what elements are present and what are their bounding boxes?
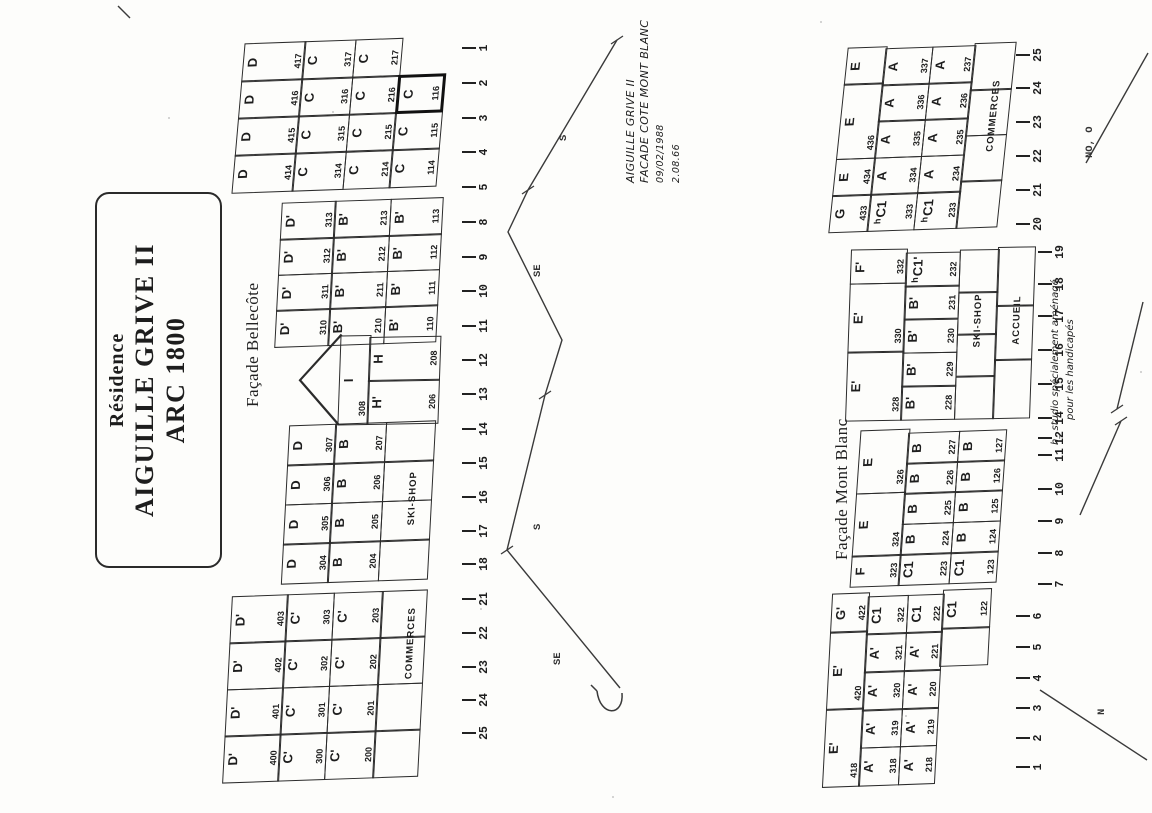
- unit-cell-228: B'228: [900, 385, 956, 421]
- unit-cell-212: B'212: [331, 235, 390, 275]
- empty-cell: [377, 636, 426, 686]
- axis-tick: [462, 325, 476, 327]
- axis-number: 10: [1054, 482, 1067, 496]
- unit-type-label: A: [877, 121, 895, 158]
- unit-cell-328: E'328: [845, 351, 904, 422]
- unit-number: 122: [978, 590, 990, 628]
- axis-number: 2: [1032, 735, 1045, 742]
- axis-tick: [462, 563, 476, 565]
- unit-cell-302: C'302: [282, 639, 333, 689]
- direction-label: S: [532, 524, 544, 530]
- unit-type-label: A': [865, 672, 881, 710]
- unit-number: 114: [424, 149, 437, 186]
- axis-number: 21: [1032, 183, 1045, 197]
- floor-row: B'110B'111B'112B'113: [383, 197, 444, 344]
- unit-type-label: B: [960, 431, 976, 462]
- axis-number: 14: [478, 422, 491, 436]
- unit-cell-205: B205: [329, 501, 383, 544]
- stamp-project: AIGUILLE GRIVE II: [624, 20, 638, 183]
- site-line: [507, 40, 620, 688]
- axis-number: 12: [478, 353, 491, 367]
- unit-type-label: B: [905, 494, 921, 525]
- axis-number: 11: [1054, 448, 1067, 462]
- axis-tick: [1038, 488, 1052, 490]
- unit-cell-217: C217: [352, 38, 403, 79]
- unit-type-label: C: [301, 79, 318, 116]
- unit-cell-116: C116: [395, 73, 446, 114]
- unit-number: 125: [988, 491, 1000, 521]
- empty-cell: [955, 180, 1002, 229]
- unit-cell-315: C315: [295, 114, 350, 155]
- unit-type-label: B: [903, 524, 919, 555]
- axis-number: 17: [478, 524, 491, 538]
- unit-type-label: C1: [909, 595, 925, 633]
- site-line: [118, 6, 130, 18]
- unit-cell-210: B'210: [328, 307, 387, 347]
- unit-cell-125: B125: [952, 490, 1002, 524]
- floor-row: C1123B124B125B126B127: [948, 426, 1007, 585]
- axis-number: 1: [1032, 764, 1045, 771]
- unit-type-label: E: [859, 431, 877, 494]
- unit-type-label: A': [901, 746, 917, 784]
- axis-number: 11: [478, 319, 491, 333]
- unit-number: 111: [426, 270, 438, 306]
- axis-number: 14: [1054, 411, 1067, 425]
- axis-number: 5: [478, 184, 491, 191]
- unit-type-label: B': [332, 273, 348, 309]
- unit-type-label: B: [907, 463, 923, 494]
- axis-tick: [1016, 615, 1030, 617]
- unit-type-label: F: [853, 556, 869, 587]
- axis-number: 5: [1032, 644, 1045, 651]
- unit-cell-319: A'319: [860, 708, 903, 749]
- unit-type-label: C1: [901, 554, 917, 585]
- axis-tick: [1016, 737, 1030, 739]
- floor-row: E'328E'330F'332: [845, 249, 908, 422]
- unit-cell-234: A234: [917, 154, 965, 194]
- axis-tick: [1016, 189, 1030, 191]
- unit-type-label: C1: [869, 597, 885, 635]
- unit-type-label: D': [279, 275, 295, 311]
- direction-label: SE: [552, 652, 564, 665]
- axis-tick: [462, 47, 476, 49]
- unit-cell-227: B227: [906, 431, 960, 465]
- unit-cell-337: A337: [882, 46, 934, 86]
- empty-cell: [374, 682, 423, 732]
- unit-cell-112: B'112: [387, 233, 442, 272]
- unit-cell-400: D'400: [222, 734, 282, 784]
- unit-cell-124: B124: [950, 520, 1000, 554]
- unit-type-label: A': [905, 671, 921, 709]
- unit-cell-326: E326: [856, 429, 910, 495]
- axis-number: 23: [478, 660, 491, 674]
- empty-cell: [954, 375, 996, 419]
- axis-number: 21: [478, 592, 491, 606]
- resort-name: ARC 1800: [160, 194, 191, 566]
- unit-type-label: B: [336, 424, 352, 464]
- axis-number: 20: [1032, 217, 1045, 231]
- ski-shop-label: SKI-SHOP: [972, 293, 985, 347]
- floor-row: [372, 589, 428, 778]
- unit-cell-312: D'312: [278, 237, 335, 276]
- unit-type-label: D': [281, 239, 297, 275]
- empty-cell: [377, 539, 429, 582]
- axis-number: 9: [1054, 518, 1067, 525]
- unit-type-label: B: [332, 503, 348, 543]
- unit-type-label: C': [327, 732, 343, 779]
- scanned-facade-plan: Résidence AIGUILLE GRIVE II ARC 1800 AIG…: [0, 0, 1152, 813]
- unit-type-label: C': [285, 641, 301, 688]
- unit-type-label: D': [283, 203, 299, 239]
- unit-number: 110: [424, 306, 436, 342]
- unit-cell-233: hC1233: [913, 191, 961, 231]
- axis-tick: [1016, 766, 1030, 768]
- unit-cell-225: B225: [902, 491, 956, 525]
- unit-cell-313: D'313: [280, 201, 337, 240]
- unit-cell-222: C1222: [905, 593, 944, 634]
- axis-number: 7: [1054, 581, 1067, 588]
- axis-tick: [462, 666, 476, 668]
- unit-cell-320: A'320: [862, 670, 905, 711]
- unit-type-label: D: [284, 544, 300, 584]
- unit-cell-E: E: [844, 46, 888, 86]
- axis-tick: [1038, 437, 1052, 439]
- unit-number: 112: [428, 234, 440, 270]
- unit-type-label: A: [920, 156, 938, 193]
- floor-row: H'206H208: [367, 332, 442, 425]
- stamp-sheet: FACADE COTE MONT BLANC: [638, 20, 652, 183]
- empty-cell: [992, 359, 1032, 419]
- unit-type-label: hC1: [870, 194, 891, 231]
- unit-cell-415: D415: [235, 116, 300, 157]
- empty-cell: [372, 729, 421, 779]
- unit-cell-330: E'330: [847, 282, 906, 353]
- axis-number: 3: [478, 115, 491, 122]
- unit-type-label: A': [903, 709, 919, 747]
- unit-type-label: D: [238, 118, 255, 155]
- unit-cell-216: C216: [349, 75, 400, 116]
- axis-number: 24: [1032, 81, 1045, 95]
- unit-type-label: hC1': [908, 253, 926, 286]
- unit-type-label: E: [839, 85, 861, 160]
- axis-tick: [462, 632, 476, 634]
- axis-tick: [1016, 155, 1030, 157]
- unit-type-label: C: [355, 40, 372, 77]
- axis-tick: [1016, 223, 1030, 225]
- unit-type-label: C': [280, 734, 296, 781]
- unit-cell-434: E434: [832, 157, 876, 197]
- residence-title: Résidence: [106, 194, 129, 566]
- unit-cell-336: A336: [878, 83, 930, 123]
- site-line-tick: [1111, 405, 1123, 413]
- unit-cell-303: C'303: [285, 593, 336, 643]
- unit-cell-110: B'110: [383, 305, 438, 344]
- site-line-tick: [539, 391, 551, 399]
- building-grid-block-328: E'328E'330F'332B'228B'229B'230B'231hC1'2…: [845, 247, 1036, 422]
- direction-label: SE: [532, 264, 544, 277]
- unit-cell-206: B206: [331, 461, 385, 504]
- axis-number: 2: [478, 80, 491, 87]
- axis-tick: [462, 462, 476, 464]
- compass-hook-icon: [591, 685, 622, 711]
- axis-tick: [462, 393, 476, 395]
- unit-number: 123: [984, 552, 996, 582]
- axis-tick: [462, 428, 476, 430]
- axis-tick: [1038, 315, 1052, 317]
- axis-tick: [462, 186, 476, 188]
- empty-cell: [960, 134, 1007, 183]
- unit-type-label: D': [225, 736, 241, 783]
- unit-cell-236: A236: [924, 81, 972, 121]
- unit-cell-416: D416: [238, 78, 303, 119]
- unit-type-label: C: [305, 42, 322, 79]
- paper-speck: [480, 608, 482, 610]
- axis-number: 16: [1054, 343, 1067, 357]
- axis-number: 24: [478, 693, 491, 707]
- unit-cell-316: C316: [298, 77, 353, 118]
- unit-cell-335: A335: [874, 119, 926, 159]
- unit-type-label: C: [348, 114, 365, 151]
- accueil-label: ACCUEIL: [1011, 295, 1024, 344]
- unit-cell-324: E324: [852, 491, 906, 557]
- building-grid-block-323: F323E324E326C1223B224B225B226B227C1123B1…: [850, 426, 1008, 588]
- unit-number: 113: [430, 198, 442, 234]
- unit-type-label: D: [241, 81, 258, 118]
- unit-type-label: D': [232, 597, 248, 644]
- unit-type-label: C: [391, 150, 408, 187]
- axis-tick: [1038, 283, 1052, 285]
- unit-cell-322: C1322: [866, 595, 909, 636]
- unit-type-label: D: [235, 155, 252, 192]
- axis-tick: [462, 732, 476, 734]
- unit-cell-433: G433: [828, 194, 872, 234]
- empty-cell: [379, 589, 428, 639]
- axis-tick: [462, 256, 476, 258]
- unit-type-label: C: [352, 77, 369, 114]
- unit-cell-126: B126: [955, 459, 1005, 493]
- stamp-date: 09/02/1988: [654, 20, 668, 183]
- building-grid-block-400: D'400D'401D'402D'403C'300C'301C'302C'303…: [222, 589, 428, 783]
- site-line: [1040, 690, 1147, 760]
- empty-cell: [958, 249, 1000, 293]
- unit-cell-215: C215: [345, 112, 396, 153]
- stamp-scale: 2.08.66: [670, 20, 684, 183]
- floor-row: D'310D'311D'312D'313: [274, 201, 337, 348]
- site-line-tick: [1115, 417, 1127, 425]
- site-line-tick: [501, 546, 513, 554]
- unit-type-label: E': [829, 632, 847, 709]
- axis-number: 3: [1032, 705, 1045, 712]
- unit-type-label: B: [958, 461, 974, 492]
- facade-label-bellecote: Façade Bellecôte: [243, 282, 263, 407]
- unit-cell-235: A235: [921, 118, 969, 158]
- axis-tick: [1016, 54, 1030, 56]
- paper-speck: [1140, 371, 1142, 373]
- unit-cell-418: E'418: [822, 708, 864, 788]
- unit-cell-403: D'403: [229, 594, 289, 644]
- unit-type-label: B': [903, 386, 918, 419]
- handicap-flag: h: [919, 217, 930, 223]
- unit-type-label: E': [825, 709, 843, 786]
- unit-cell-334: A334: [870, 156, 922, 196]
- unit-cell-321: A'321: [864, 632, 907, 673]
- unit-cell-420: E'420: [826, 630, 868, 710]
- site-line: [1086, 53, 1148, 163]
- unit-type-label: B': [906, 320, 921, 353]
- axis-number: 23: [1032, 115, 1045, 129]
- axis-tick: [1038, 520, 1052, 522]
- floor-row: B'228B'229B'230B'231hC1'232: [900, 248, 961, 421]
- unit-number: 127: [993, 430, 1005, 460]
- axis-tick: [462, 290, 476, 292]
- axis-tick: [1016, 707, 1030, 709]
- unit-cell-200: C'200: [324, 730, 377, 780]
- axis-number: 19: [1054, 245, 1067, 259]
- axis-tick: [1038, 583, 1052, 585]
- unit-cell-301: C'301: [280, 685, 331, 735]
- axis-number: 13: [478, 387, 491, 401]
- empty-cell: [384, 420, 436, 463]
- unit-type-label: C: [298, 116, 315, 153]
- site-line-tick: [611, 36, 623, 44]
- paper-speck: [168, 117, 170, 119]
- axis-number: 25: [478, 726, 491, 740]
- unit-cell-401: D'401: [225, 687, 285, 737]
- unit-type-label: C': [288, 595, 304, 642]
- unit-cell-306: D306: [285, 463, 335, 506]
- axis-tick: [462, 221, 476, 223]
- floor-row: C1122: [933, 588, 992, 784]
- unit-type-label: D': [228, 690, 244, 737]
- unit-type-label: D: [288, 465, 304, 505]
- unit-cell-311: D'311: [276, 273, 333, 312]
- unit-cell-122: C1122: [941, 588, 992, 629]
- unit-cell-333: hC1333: [867, 192, 919, 232]
- site-line: [1117, 302, 1143, 409]
- axis-tick: [1038, 454, 1052, 456]
- unit-cell-317: C317: [301, 39, 356, 80]
- unit-cell-305: D305: [283, 503, 333, 546]
- unit-cell-226: B226: [904, 461, 958, 495]
- unit-cell-422: G'422: [830, 593, 870, 634]
- unit-type-label: B': [388, 271, 404, 307]
- spacer: [933, 664, 988, 784]
- unit-type-label: B': [392, 199, 408, 235]
- empty-cell: [939, 626, 990, 667]
- unit-type-label: B: [953, 522, 969, 553]
- axis-number: 1: [478, 45, 491, 52]
- unit-cell-230: B'230: [903, 318, 959, 354]
- axis-tick: [462, 699, 476, 701]
- unit-type-label: A: [927, 83, 945, 120]
- unit-type-label: hC1: [916, 192, 937, 229]
- unit-type-label: E: [835, 159, 853, 196]
- axis-tick: [462, 117, 476, 119]
- axis-number: 18: [1054, 277, 1067, 291]
- unit-type-label: D: [286, 505, 302, 545]
- unit-cell-402: D'402: [227, 641, 287, 691]
- axis-tick: [1016, 677, 1030, 679]
- unit-type-label: B: [330, 542, 346, 582]
- axis-number: 8: [478, 219, 491, 226]
- unit-type-label: C: [345, 151, 362, 188]
- unit-cell-318: A'318: [858, 746, 901, 787]
- unit-cell-206: H'206: [367, 379, 441, 425]
- unit-cell-417: D417: [241, 41, 306, 82]
- unit-cell-220: A'220: [902, 669, 941, 710]
- unit-cell-201: C'201: [326, 684, 379, 734]
- unit-type-label: E: [847, 48, 865, 85]
- axis-number: 8: [1054, 550, 1067, 557]
- unit-type-label: C1: [951, 553, 967, 584]
- unit-cell-332: F'332: [850, 249, 908, 285]
- drawing-stamp: AIGUILLE GRIVE II FACADE COTE MONT BLANC…: [624, 20, 684, 183]
- facade-label-montblanc: Façade Mont Blanc: [832, 418, 852, 560]
- unit-type-label: F': [853, 251, 868, 284]
- unit-type-label: C': [329, 686, 345, 733]
- axis-number: 4: [478, 149, 491, 156]
- unit-type-label: C: [295, 153, 312, 190]
- axis-number: 15: [478, 456, 491, 470]
- unit-cell-114: C114: [388, 148, 439, 189]
- unit-cell-237: A237: [928, 45, 976, 85]
- direction-label: S: [558, 135, 570, 141]
- unit-type-label: C: [395, 113, 412, 150]
- unit-cell-204: B204: [327, 540, 381, 583]
- unit-cell-123: C1123: [948, 551, 998, 585]
- unit-cell-219: A'219: [900, 707, 939, 748]
- unit-type-label: A: [881, 85, 899, 122]
- unit-cell-207: B207: [333, 422, 387, 465]
- axis-number: 17: [1054, 309, 1067, 323]
- floor-row: B'210B'211B'212B'213: [328, 199, 393, 346]
- unit-type-label: A: [885, 48, 903, 85]
- axis-tick: [1016, 646, 1030, 648]
- unit-type-label: A: [874, 158, 892, 195]
- axis-number: 9: [478, 254, 491, 261]
- unit-cell-323: F323: [850, 554, 902, 588]
- unit-cell-314: C314: [292, 151, 347, 192]
- unit-type-label: B': [334, 237, 350, 273]
- paper-speck: [612, 796, 614, 798]
- axis-number: 25: [1032, 48, 1045, 62]
- axis-tick: [1038, 349, 1052, 351]
- unit-type-label: B: [955, 492, 971, 523]
- unit-cell-304: D304: [281, 542, 331, 585]
- unit-type-label: G': [833, 594, 849, 632]
- unit-type-label: A': [907, 633, 923, 671]
- unit-cell-214: C214: [342, 149, 393, 190]
- unit-cell-113: B'113: [388, 197, 443, 236]
- unit-type-label: C': [334, 593, 350, 640]
- axis-tick: [1038, 417, 1052, 419]
- building-grid-block-310: D'310D'311D'312D'313B'210B'211B'212B'213…: [274, 197, 443, 348]
- unit-cell-221: A'221: [903, 631, 942, 672]
- unit-number: 126: [991, 460, 1003, 490]
- unit-cell-224: B224: [900, 522, 954, 556]
- unit-cell-300: C'300: [277, 732, 328, 782]
- unit-type-label: C: [400, 77, 417, 110]
- unit-type-label: B: [334, 464, 350, 504]
- handicap-flag: h: [910, 277, 920, 283]
- axis-number: 18: [478, 557, 491, 571]
- building-grid-block-304: D304D305D306D307B204B205B206B207SKI-SHOP: [281, 420, 436, 584]
- document-page: Résidence AIGUILLE GRIVE II ARC 1800 AIG…: [0, 0, 1152, 813]
- unit-number: 208: [428, 336, 440, 379]
- unit-number: 124: [986, 521, 998, 551]
- unit-number: 115: [428, 112, 441, 149]
- axis-tick: [462, 530, 476, 532]
